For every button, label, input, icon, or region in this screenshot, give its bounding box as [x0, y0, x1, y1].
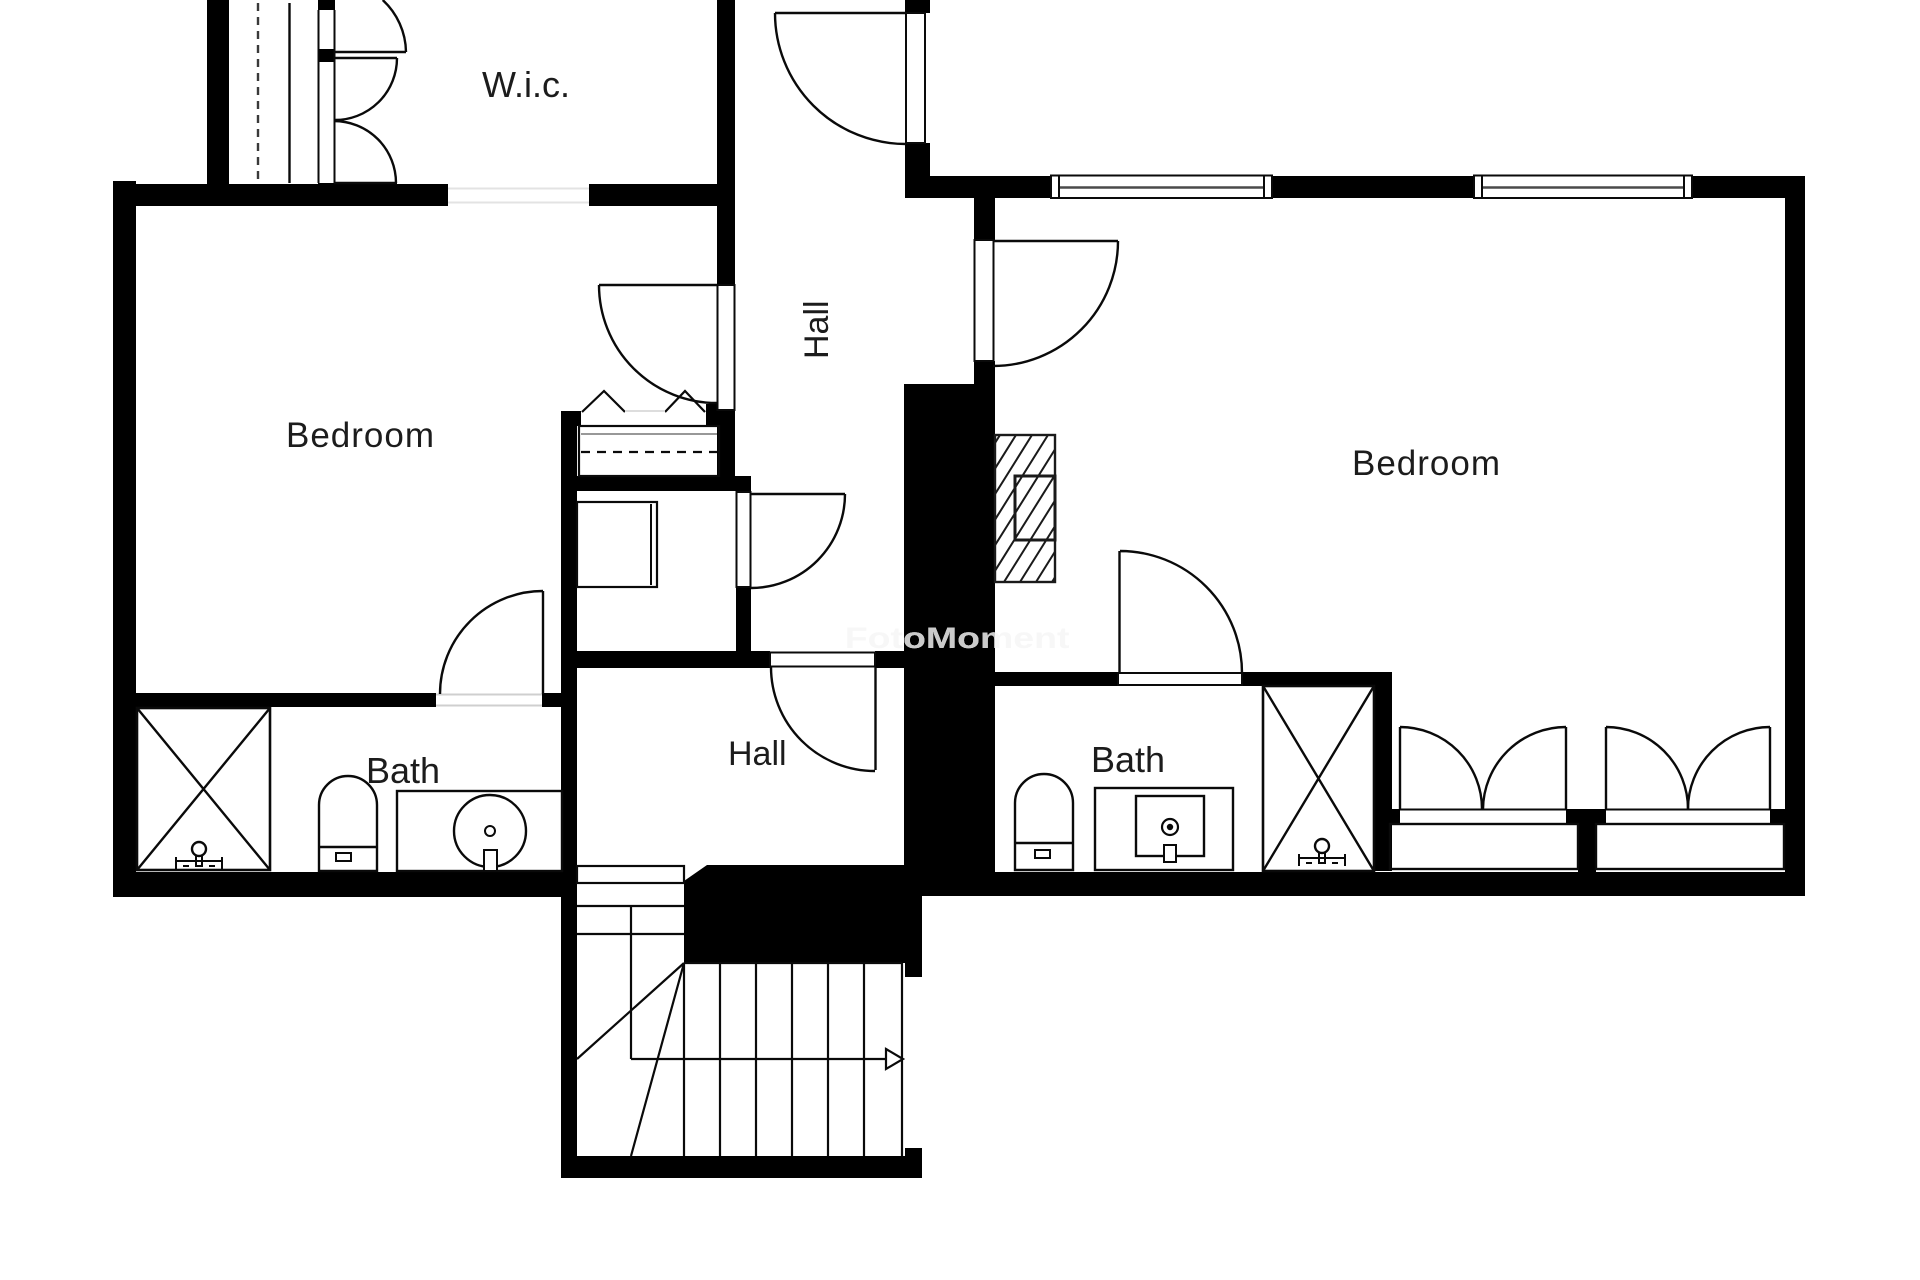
svg-text:Bath: Bath [366, 750, 440, 791]
svg-text:Bath: Bath [1091, 739, 1165, 780]
svg-text:Hall: Hall [798, 300, 836, 359]
svg-text:Bedroom: Bedroom [1352, 444, 1501, 483]
svg-text:Bedroom: Bedroom [286, 416, 435, 455]
svg-text:Hall: Hall [728, 735, 787, 773]
svg-text:W.i.c.: W.i.c. [482, 64, 570, 105]
